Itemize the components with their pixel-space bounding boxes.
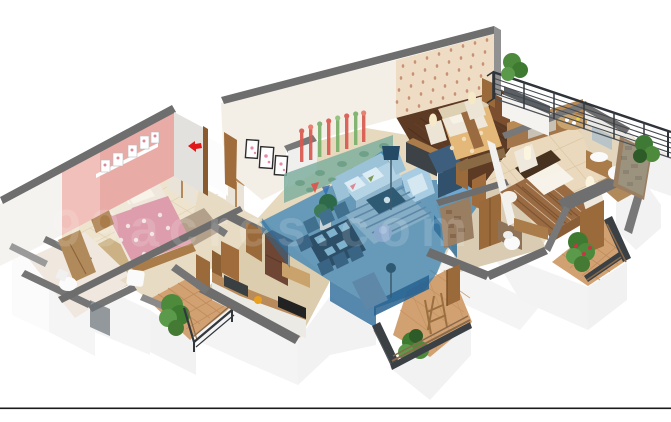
svg-text:99acres.com: 99acres.com [52, 200, 477, 258]
